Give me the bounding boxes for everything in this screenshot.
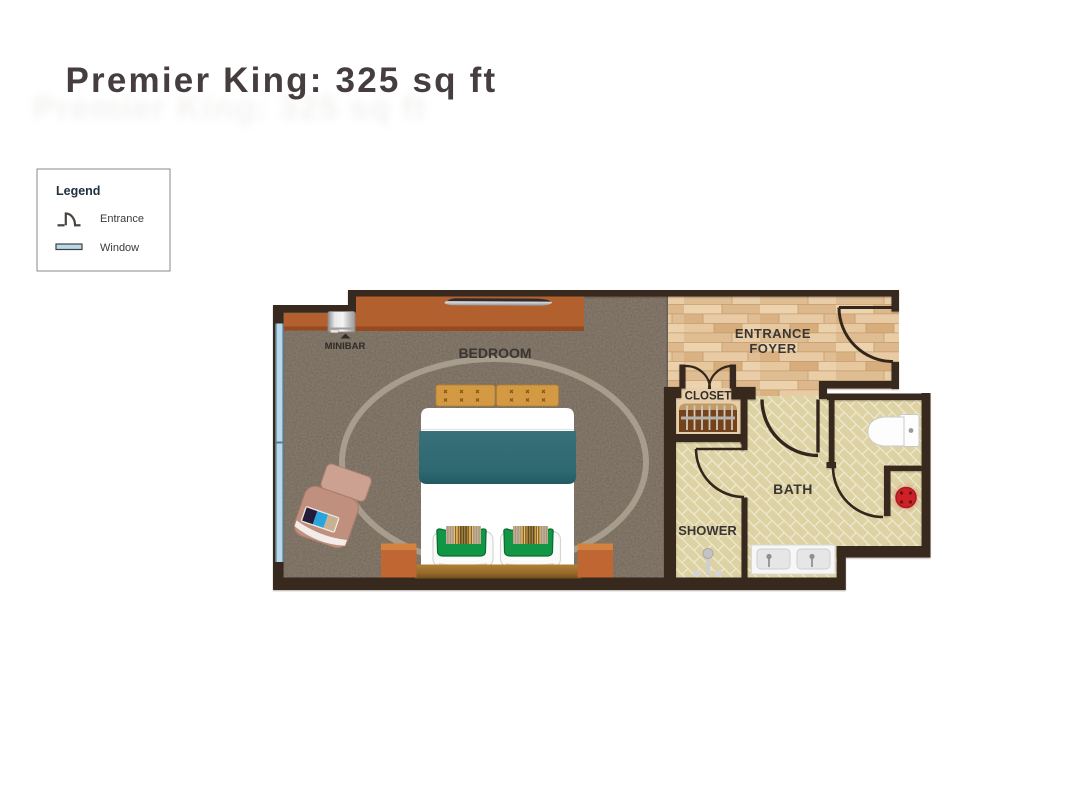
svg-text:Premier King: 325 sq ft: Premier King: 325 sq ft	[66, 61, 498, 100]
svg-text:CLOSET: CLOSET	[685, 391, 732, 403]
svg-text:Legend: Legend	[56, 184, 100, 198]
svg-text:Entrance: Entrance	[100, 213, 144, 225]
svg-text:FOYER: FOYER	[749, 341, 796, 356]
svg-text:Window: Window	[100, 242, 139, 254]
svg-text:BEDROOM: BEDROOM	[458, 345, 531, 361]
svg-text:ENTRANCE: ENTRANCE	[735, 326, 811, 341]
svg-text:SHOWER: SHOWER	[678, 523, 737, 538]
svg-text:BATH: BATH	[773, 481, 813, 497]
svg-text:MINIBAR: MINIBAR	[325, 341, 366, 352]
